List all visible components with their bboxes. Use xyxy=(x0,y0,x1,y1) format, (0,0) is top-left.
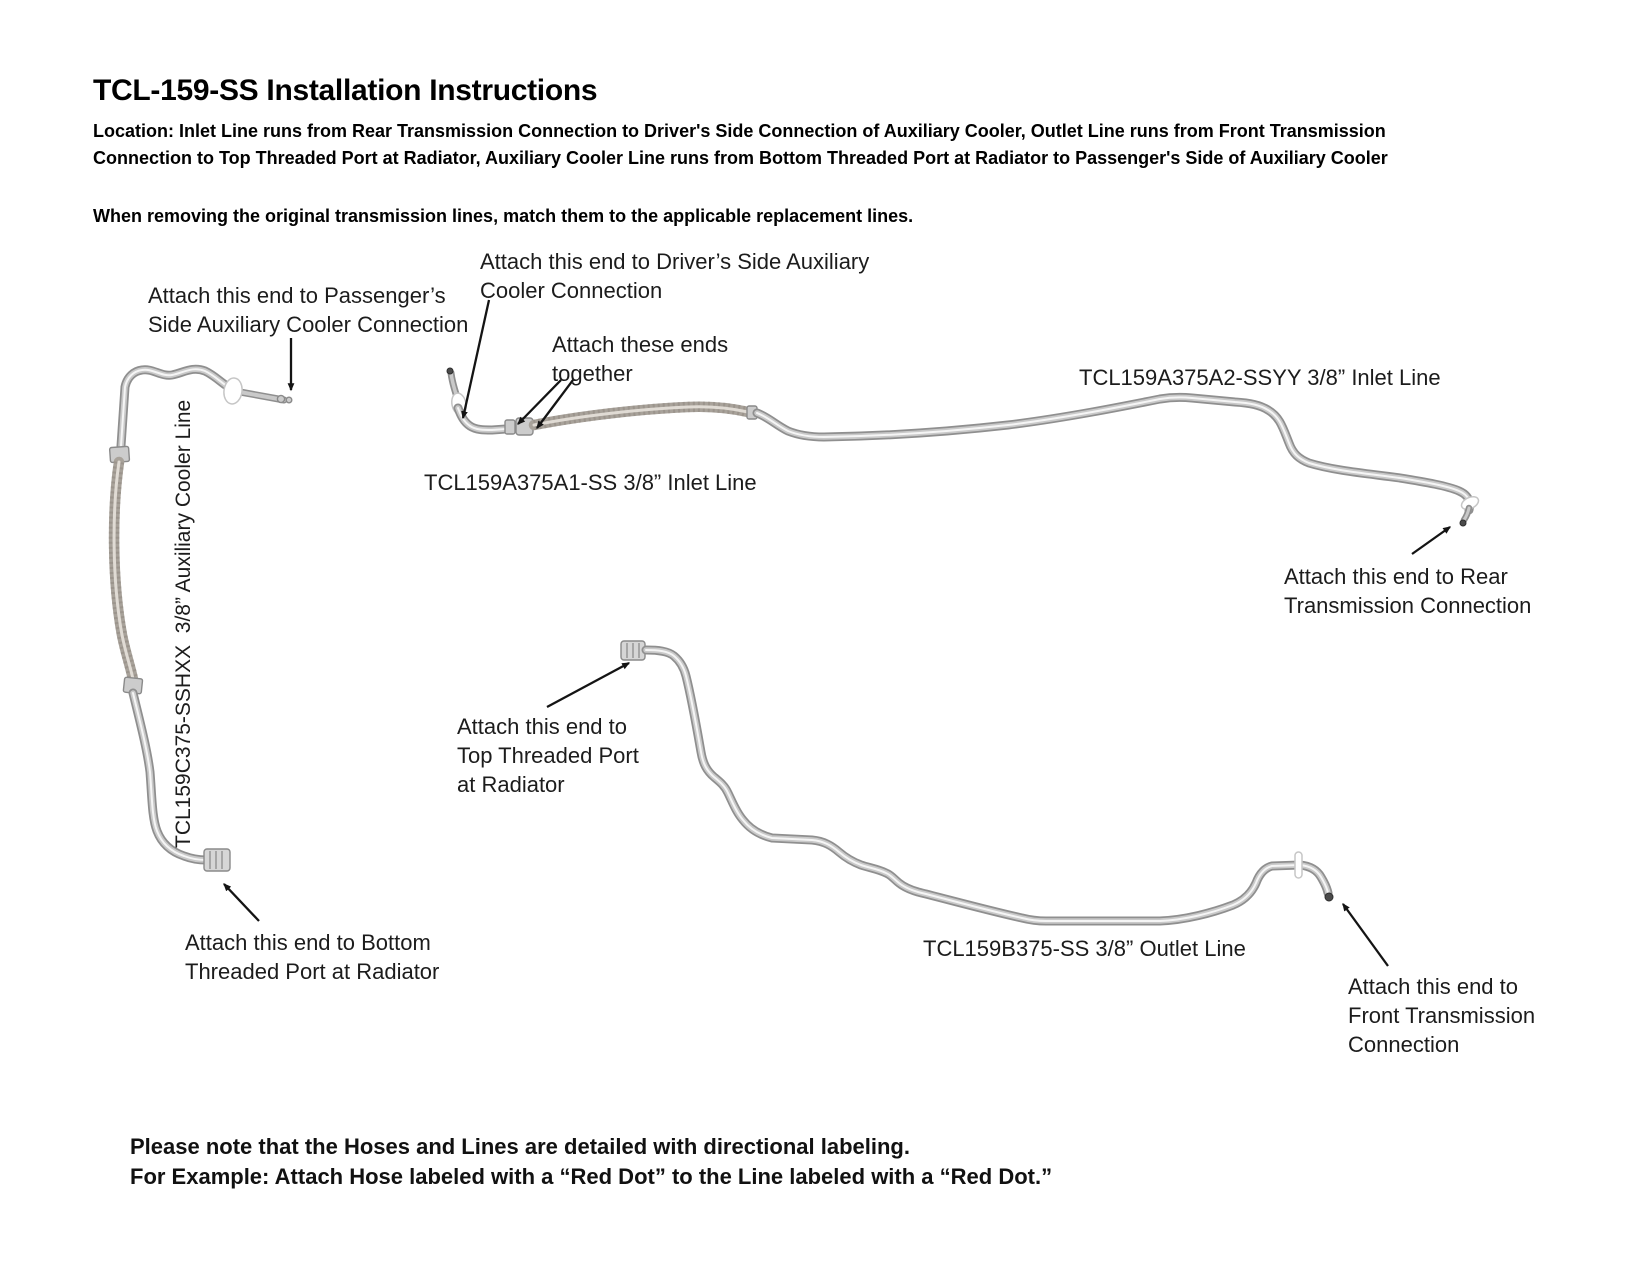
label-auxiliary-cooler-line: TCL159C375-SSHXX 3/8” Auxiliary Cooler L… xyxy=(172,412,196,848)
threaded-fitting-bottom-port xyxy=(204,849,230,871)
callout-line: Front Transmission xyxy=(1348,1001,1535,1030)
inlet-line-figure xyxy=(447,368,1480,526)
arrow-front-transmission xyxy=(1343,904,1388,966)
quick-connect-union xyxy=(505,418,533,435)
callout-line: Attach this end to Bottom xyxy=(185,928,439,957)
removal-note: When removing the original transmission … xyxy=(93,206,913,227)
callout-line: at Radiator xyxy=(457,770,639,799)
callout-line: Attach these ends xyxy=(552,330,728,359)
note-line: For Example: Attach Hose labeled with a … xyxy=(130,1162,1052,1192)
arrow-bottom-threaded-port xyxy=(224,884,259,921)
page-title: TCL-159-SS Installation Instructions xyxy=(93,74,597,108)
callout-line: Threaded Port at Radiator xyxy=(185,957,439,986)
callout-passenger-side: Attach this end to Passenger’s Side Auxi… xyxy=(148,281,468,339)
braided-hose-section xyxy=(534,407,748,425)
callout-line: Attach this end to Rear xyxy=(1284,562,1531,591)
callout-rear-transmission: Attach this end to Rear Transmission Con… xyxy=(1284,562,1531,620)
white-retainer-clip xyxy=(1295,852,1302,878)
callout-line: Attach this end to xyxy=(1348,972,1535,1001)
callout-line: together xyxy=(552,359,728,388)
callout-line: Transmission Connection xyxy=(1284,591,1531,620)
outlet-line-figure xyxy=(621,641,1333,921)
transmission-lines-diagram xyxy=(0,0,1650,1275)
label-outlet-line: TCL159B375-SS 3/8” Outlet Line xyxy=(923,936,1246,962)
callout-bottom-threaded-port: Attach this end to Bottom Threaded Port … xyxy=(185,928,439,986)
label-inlet-line-a1: TCL159A375A1-SS 3/8” Inlet Line xyxy=(424,470,757,496)
callout-line: Top Threaded Port xyxy=(457,741,639,770)
installation-instructions-page: TCL-159-SS Installation Instructions Loc… xyxy=(0,0,1650,1275)
note-line: Please note that the Hoses and Lines are… xyxy=(130,1132,1052,1162)
arrow-rear-transmission xyxy=(1412,527,1450,554)
callout-top-threaded-port: Attach this end to Top Threaded Port at … xyxy=(457,712,639,799)
callout-front-transmission: Attach this end to Front Transmission Co… xyxy=(1348,972,1535,1059)
tube-opening xyxy=(1460,520,1466,526)
arrow-top-threaded-port xyxy=(547,663,629,707)
callout-line: Attach this end to Passenger’s xyxy=(148,281,468,310)
callout-line: Attach this end to Driver’s Side Auxilia… xyxy=(480,247,869,276)
callout-line: Attach this end to xyxy=(457,712,639,741)
callout-line: Connection xyxy=(1348,1030,1535,1059)
callout-line: Cooler Connection xyxy=(480,276,869,305)
callout-line: Side Auxiliary Cooler Connection xyxy=(148,310,468,339)
callout-ends-together: Attach these ends together xyxy=(552,330,728,388)
threaded-fitting-top-port xyxy=(621,641,645,660)
directional-labeling-note: Please note that the Hoses and Lines are… xyxy=(130,1132,1052,1192)
tube-opening xyxy=(447,368,453,374)
location-note: Location: Inlet Line runs from Rear Tran… xyxy=(93,118,1465,172)
tube-opening xyxy=(1325,893,1333,901)
braided-hose-section xyxy=(114,462,134,684)
label-inlet-line-a2: TCL159A375A2-SSYY 3/8” Inlet Line xyxy=(1079,365,1441,391)
quick-connect-barb-end xyxy=(240,392,292,403)
callout-driver-side: Attach this end to Driver’s Side Auxilia… xyxy=(480,247,869,305)
auxiliary-cooler-line-figure xyxy=(110,369,292,871)
